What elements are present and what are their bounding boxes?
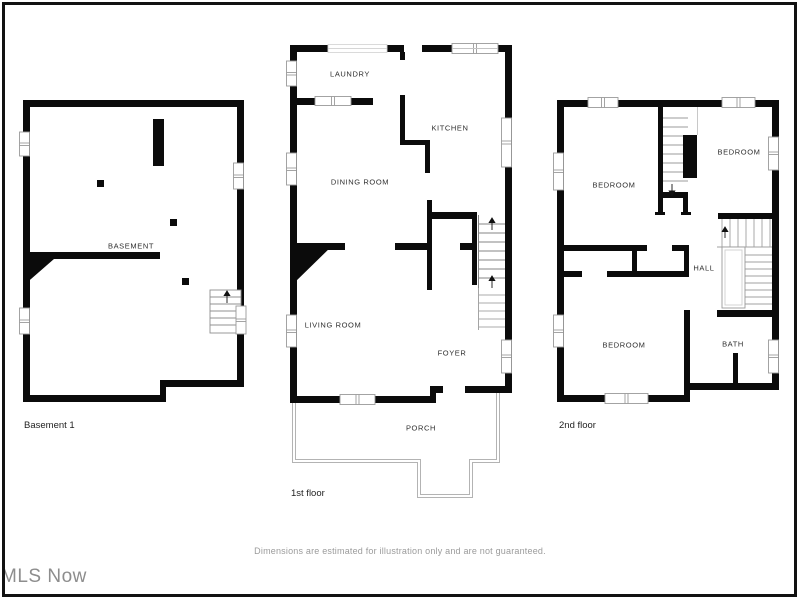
second-floor-right-stairs [717,219,772,308]
room-label-living: LIVING ROOM [305,321,362,330]
room-label-porch: PORCH [406,424,436,433]
room-label-bedroom-top-right: BEDROOM [718,148,761,157]
floor-label-basement: Basement 1 [24,420,75,431]
floorplan-image: BASEMENT Basement 1 LAUNDRY KITCHEN DINI… [0,0,800,600]
floorplan-geometry [0,0,800,600]
second-floor-plan [554,98,780,404]
basement-walls [23,100,244,402]
first-floor-corner-triangle [292,243,335,285]
room-label-hall: HALL [693,264,714,273]
mls-watermark: MLS Now [1,566,87,588]
room-label-bath: BATH [722,340,744,349]
disclaimer-text: Dimensions are estimated for illustratio… [0,546,800,556]
basement-chimney [153,119,164,166]
room-label-kitchen: KITCHEN [431,124,468,133]
room-label-basement: BASEMENT [108,242,154,251]
room-label-foyer: FOYER [438,349,467,358]
porch-outline [293,393,500,498]
stairs-up-arrow-icon [722,227,728,238]
first-floor-plan [287,44,513,498]
first-floor-stairs [479,215,506,330]
room-label-bedroom-top-left: BEDROOM [593,181,636,190]
first-floor-windows [287,44,512,405]
basement-plan [20,100,247,402]
room-label-dining: DINING ROOM [331,178,389,187]
floor-label-first: 1st floor [291,488,325,499]
floor-label-second: 2nd floor [559,420,596,431]
room-label-laundry: LAUNDRY [330,70,370,79]
second-floor-chimney [683,135,697,178]
basement-posts [97,180,189,285]
room-label-bedroom-bottom: BEDROOM [603,341,646,350]
